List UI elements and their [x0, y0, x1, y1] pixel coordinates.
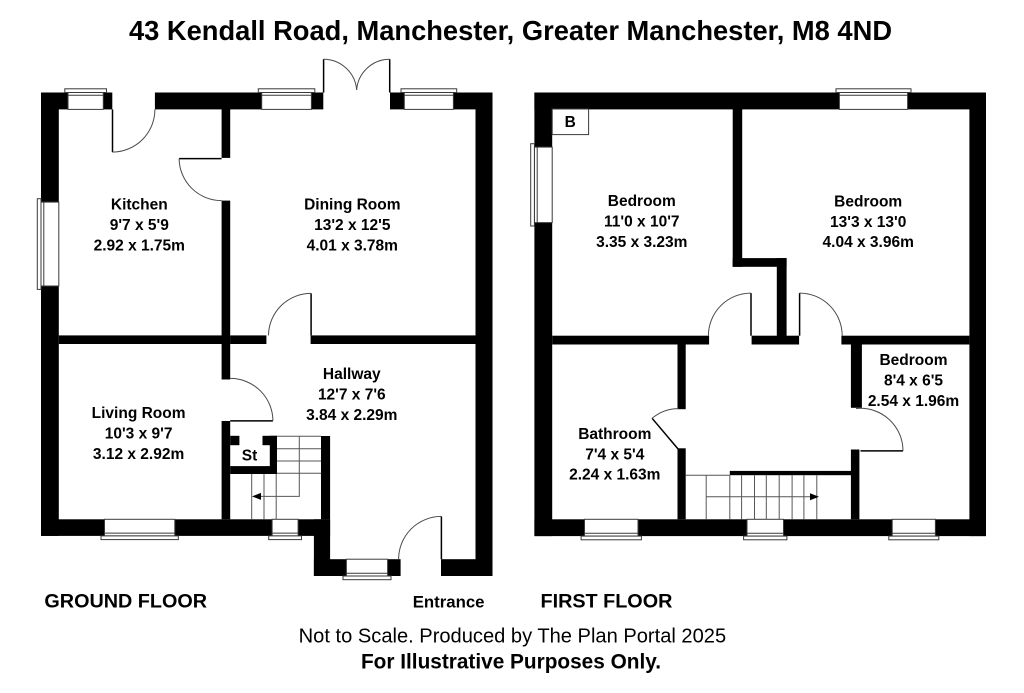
svg-text:13'3 x 13'0: 13'3 x 13'0 [830, 214, 906, 231]
svg-text:7'4 x 5'4: 7'4 x 5'4 [585, 446, 644, 463]
svg-text:43 Kendall Road, Manchester, G: 43 Kendall Road, Manchester, Greater Man… [129, 15, 892, 46]
svg-text:11'0 x 10'7: 11'0 x 10'7 [604, 214, 679, 231]
svg-text:10'3 x 9'7: 10'3 x 9'7 [105, 425, 173, 442]
svg-text:FIRST FLOOR: FIRST FLOOR [541, 591, 673, 613]
svg-text:8'4 x 6'5: 8'4 x 6'5 [884, 373, 943, 390]
svg-text:3.84 x 2.29m: 3.84 x 2.29m [306, 407, 397, 424]
svg-text:13'2 x 12'5: 13'2 x 12'5 [314, 217, 391, 234]
svg-text:St: St [242, 448, 258, 465]
svg-text:B: B [565, 114, 576, 131]
svg-text:GROUND FLOOR: GROUND FLOOR [44, 591, 207, 613]
svg-text:Bedroom: Bedroom [608, 193, 676, 210]
svg-text:Living Room: Living Room [92, 405, 186, 422]
svg-text:4.04 x 3.96m: 4.04 x 3.96m [823, 234, 914, 251]
svg-text:3.35 x 3.23m: 3.35 x 3.23m [596, 234, 687, 251]
svg-text:2.92 x 1.75m: 2.92 x 1.75m [94, 237, 185, 254]
svg-text:Entrance: Entrance [413, 593, 485, 612]
svg-text:3.12 x 2.92m: 3.12 x 2.92m [93, 446, 184, 463]
svg-text:2.54 x 1.96m: 2.54 x 1.96m [868, 393, 959, 410]
svg-text:Hallway: Hallway [323, 366, 381, 383]
svg-text:Bedroom: Bedroom [879, 352, 947, 369]
svg-text:12'7 x 7'6: 12'7 x 7'6 [318, 387, 386, 404]
svg-text:Kitchen: Kitchen [111, 197, 168, 214]
svg-text:Bedroom: Bedroom [834, 194, 902, 211]
svg-text:Bathroom: Bathroom [578, 426, 651, 443]
svg-text:9'7 x 5'9: 9'7 x 5'9 [110, 217, 169, 234]
svg-text:4.01 x 3.78m: 4.01 x 3.78m [307, 237, 398, 254]
svg-text:Dining Room: Dining Room [304, 197, 400, 214]
svg-text:Not to Scale. Produced by The: Not to Scale. Produced by The Plan Porta… [299, 626, 726, 648]
svg-text:For Illustrative Purposes Only: For Illustrative Purposes Only. [361, 650, 661, 673]
svg-text:2.24 x 1.63m: 2.24 x 1.63m [569, 467, 660, 484]
